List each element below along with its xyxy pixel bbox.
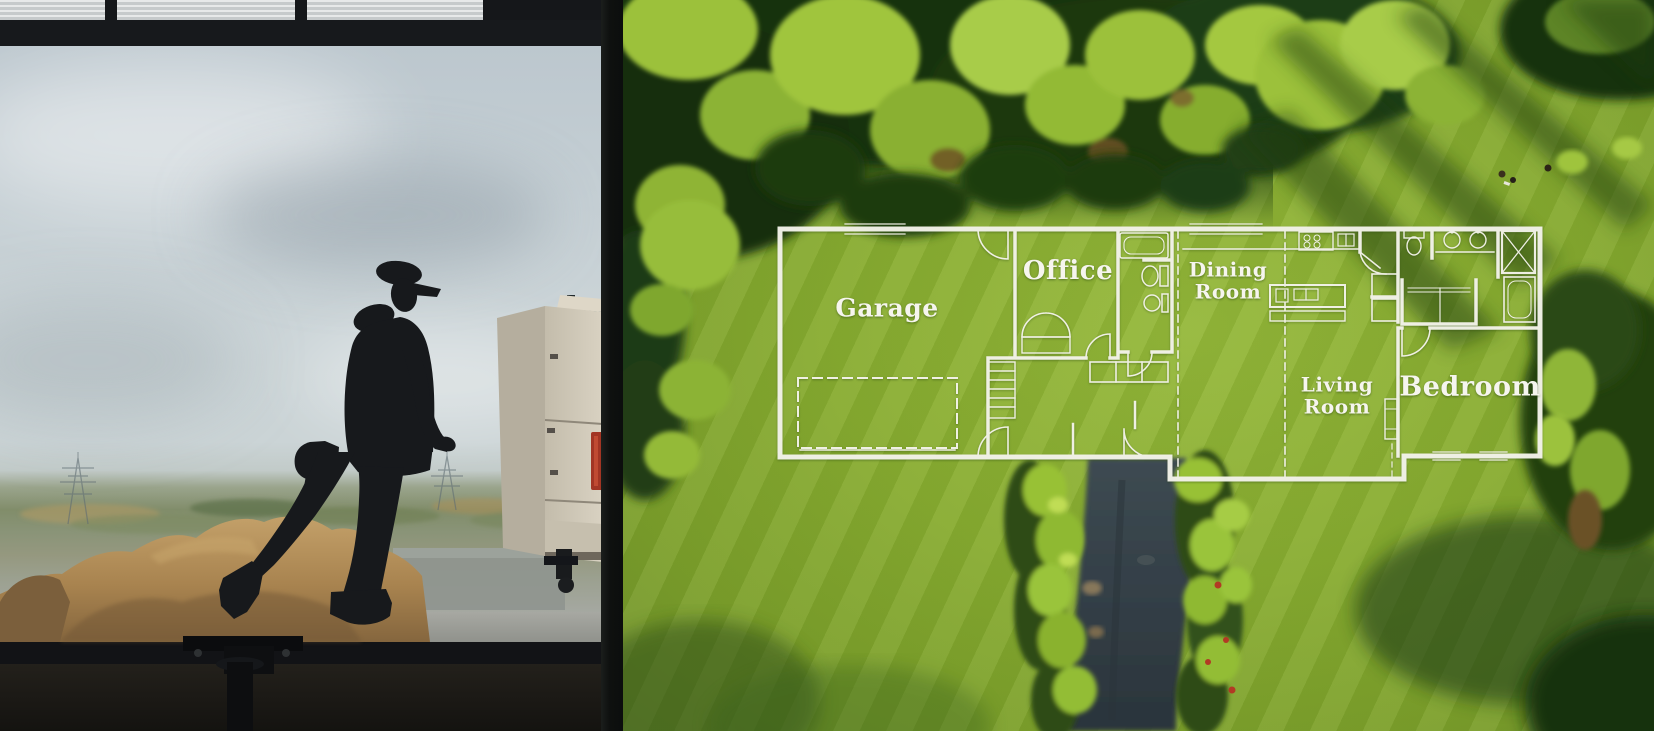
windows — [845, 224, 1507, 460]
bathtub — [1504, 277, 1535, 322]
garage-pad-dashed — [798, 378, 957, 448]
hitch-ball — [558, 577, 574, 593]
window-mullion — [295, 0, 307, 22]
door-header-beam — [0, 20, 623, 46]
stairs — [988, 362, 1015, 418]
hero-composite: Garage Office Dining Room Living Room Be… — [0, 0, 1654, 731]
doorway-scene-art — [0, 0, 623, 731]
floor-plan-overlay — [740, 210, 1555, 490]
room-label-office: Office — [1023, 257, 1113, 285]
room-label-dining-room: Dining Room — [1186, 259, 1270, 302]
service-truck — [497, 295, 603, 593]
aerial-lawn-panel: Garage Office Dining Room Living Room Be… — [623, 0, 1654, 731]
construction-photo-panel — [0, 0, 623, 731]
door-track-hardware — [183, 636, 303, 731]
room-label-living-room: Living Room — [1295, 374, 1379, 417]
laundry — [1090, 362, 1168, 382]
window-mullion — [105, 0, 117, 22]
frame-corner — [483, 0, 603, 22]
primary-bath — [1404, 230, 1535, 324]
closet-rods — [1408, 288, 1470, 292]
room-label-bedroom: Bedroom — [1399, 372, 1540, 401]
fireplace — [1385, 399, 1397, 439]
room-label-garage: Garage — [835, 295, 938, 322]
hall-bath — [1120, 233, 1168, 312]
door-frame-column — [601, 0, 623, 731]
kitchen-island — [1270, 285, 1345, 307]
